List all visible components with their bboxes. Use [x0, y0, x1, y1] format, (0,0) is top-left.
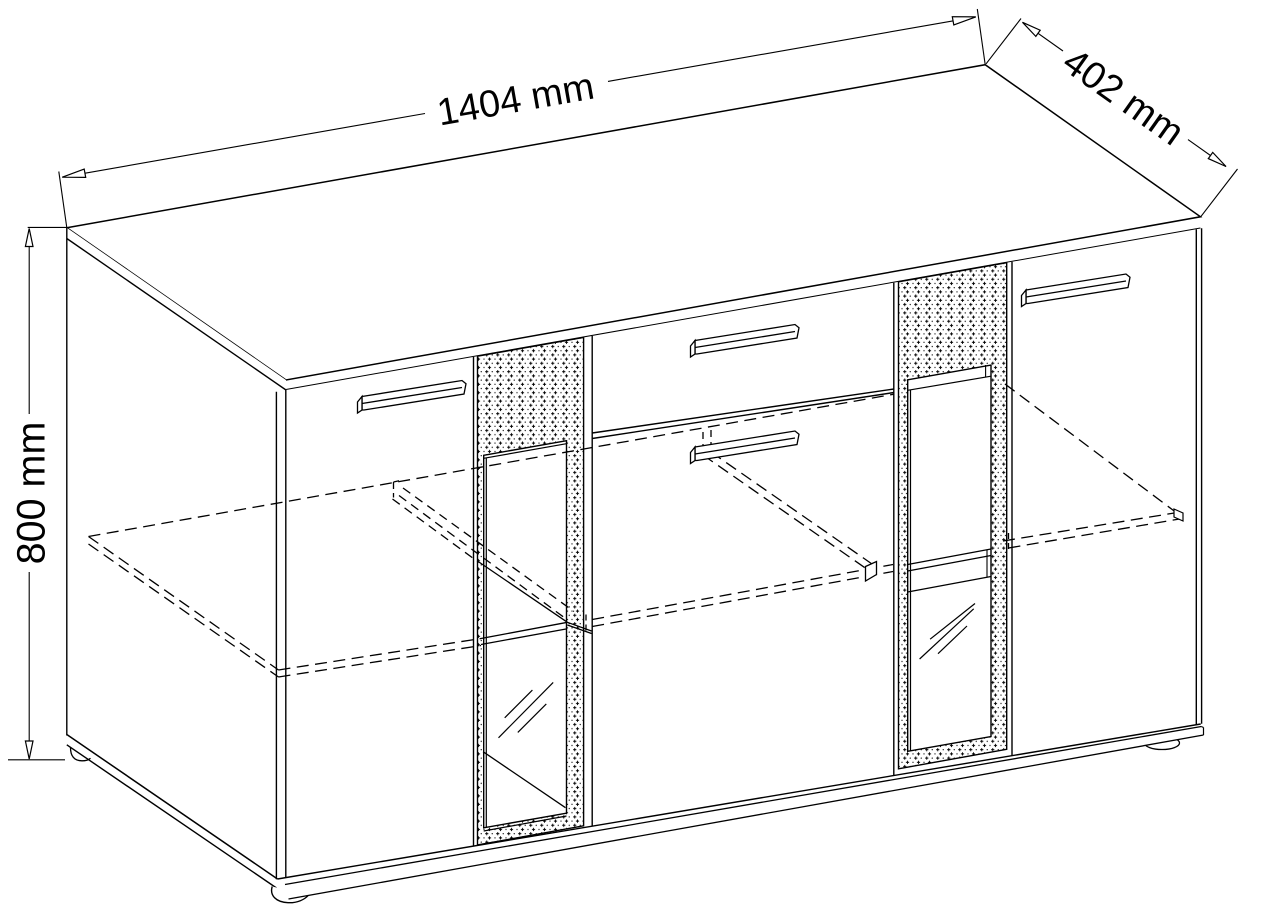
svg-text:800 mm: 800 mm [9, 422, 53, 565]
